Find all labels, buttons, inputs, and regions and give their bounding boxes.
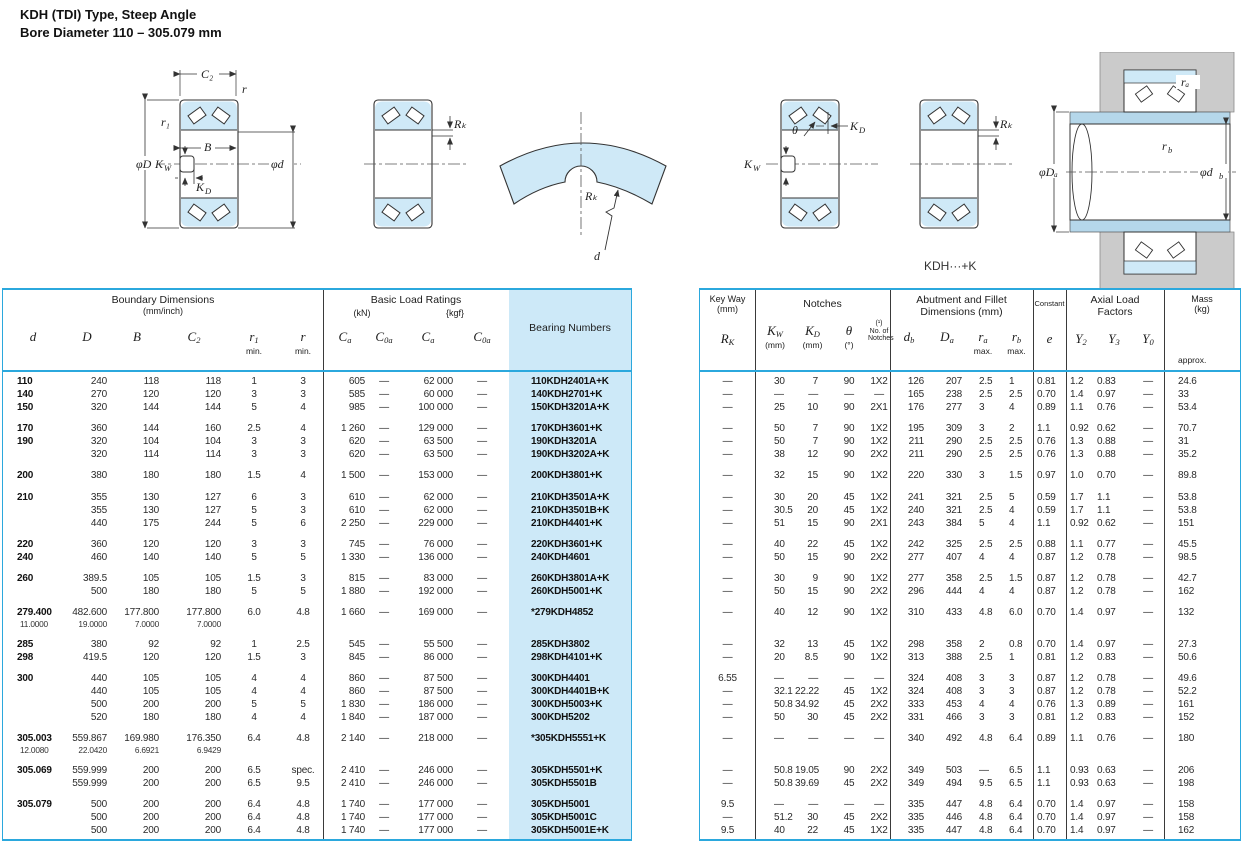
cell: 559.86722.0420 — [63, 732, 111, 756]
cell: 87 500 — [401, 672, 455, 685]
cell: *305KDH5551+K — [509, 732, 631, 756]
cell: 1X2 — [868, 572, 890, 585]
cell: — — [455, 375, 509, 388]
cell: 238 — [928, 388, 966, 401]
cell: 90 — [830, 435, 868, 448]
cell: — — [455, 551, 509, 564]
col-header-Y0: Y0 — [1132, 330, 1164, 348]
cell: — — [455, 585, 509, 598]
cell: — — [700, 711, 755, 724]
cell: — — [455, 504, 509, 517]
cell: 33 — [1164, 388, 1240, 401]
cell: 162 — [1164, 585, 1240, 598]
cell: 6.5 — [225, 777, 283, 790]
right-table-header: Key Way(mm) RK Notches KW(mm) KD(mm) θ(°… — [700, 290, 1240, 370]
cell: 1X2 — [868, 491, 890, 504]
cell: 559.999 — [63, 764, 111, 777]
cell: — — [367, 538, 401, 551]
cell: 22.22 — [795, 685, 830, 698]
cell: 4 — [225, 685, 283, 698]
cell: 260KDH5001+K — [509, 585, 631, 598]
row-group: 21035513012763610—62 000—210KDH3501A+K35… — [3, 491, 631, 530]
table-row: 35513012753610—62 000—210KDH3501B+K — [3, 504, 631, 517]
cell: 4.8 — [966, 824, 1000, 837]
cell: — — [700, 585, 755, 598]
cell: 210KDH3501B+K — [509, 504, 631, 517]
cell: — — [455, 824, 509, 837]
cell: 50.8 — [755, 777, 795, 790]
col-header-ra-max: ramax. — [966, 328, 1000, 356]
cell: 1 — [1000, 375, 1033, 388]
cell: 4 — [966, 585, 1000, 598]
cell: 349 — [890, 777, 928, 790]
cell — [3, 698, 63, 711]
cell: — — [455, 469, 509, 482]
cell: 136 000 — [401, 551, 455, 564]
cell: 5 — [283, 698, 323, 711]
cell: 2.5 — [283, 638, 323, 651]
cell: 45 — [830, 777, 868, 790]
column-divider — [755, 290, 756, 839]
catalog-page: KDH (TDI) Type, Steep Angle Bore Diamete… — [0, 0, 1241, 844]
cell: 1.1 — [1033, 517, 1066, 530]
cell: — — [455, 798, 509, 811]
cell: 52.2 — [1164, 685, 1240, 698]
cell: 2.5 — [1000, 388, 1033, 401]
cell: 140 — [111, 551, 163, 564]
cell: 0.97 — [1096, 811, 1132, 824]
col-header-theta: θ(°) — [830, 322, 868, 350]
cell: 0.78 — [1096, 585, 1132, 598]
cell: — — [367, 638, 401, 651]
cell: 3 — [283, 651, 323, 664]
cell: 229 000 — [401, 517, 455, 530]
cell: 9.5 — [700, 824, 755, 837]
cell: 335 — [890, 798, 928, 811]
cell: 305.079 — [3, 798, 63, 811]
row-group: —309901X22773582.51.50.871.20.78—42.7—50… — [700, 572, 1240, 598]
cell: 0.92 — [1066, 422, 1096, 435]
cell: 360 — [63, 422, 111, 435]
cell: 98.5 — [1164, 551, 1240, 564]
cell: 9.5 — [700, 798, 755, 811]
dim-label-kd: K — [195, 180, 205, 194]
cell: 333 — [890, 698, 928, 711]
cell: — — [1132, 435, 1164, 448]
cell: 1.5 — [1000, 572, 1033, 585]
cell: 45 — [830, 824, 868, 837]
cell: 90 — [830, 764, 868, 777]
cell: 158 — [1164, 811, 1240, 824]
page-title: KDH (TDI) Type, Steep Angle Bore Diamete… — [20, 6, 222, 42]
cell: 0.89 — [1033, 401, 1066, 414]
cell: 4 — [1000, 698, 1033, 711]
cell: — — [367, 572, 401, 585]
cell: 53.8 — [1164, 504, 1240, 517]
cell: 200 — [111, 824, 163, 837]
cell — [3, 504, 63, 517]
cell: 0.81 — [1033, 651, 1066, 664]
cell: 0.97 — [1096, 824, 1132, 837]
cell: 132 — [1164, 606, 1240, 630]
cell: 1 330 — [323, 551, 367, 564]
cell: 0.89 — [1096, 698, 1132, 711]
cell: 298 — [890, 638, 928, 651]
cell: 120 — [163, 538, 225, 551]
cell: 177.8007.0000 — [163, 606, 225, 630]
mass-approx-label: approx. — [1164, 354, 1241, 366]
cell: 20 — [795, 491, 830, 504]
cell: 89.8 — [1164, 469, 1240, 482]
cell: 127 — [163, 504, 225, 517]
cell: 170KDH3601+K — [509, 422, 631, 435]
cell: 0.83 — [1096, 711, 1132, 724]
col-header-d: d — [3, 328, 63, 346]
cell: 1X2 — [868, 538, 890, 551]
cell: 90 — [830, 572, 868, 585]
cell: — — [966, 764, 1000, 777]
cell: — — [367, 375, 401, 388]
cell: 335 — [890, 824, 928, 837]
col-header-Ca-kn: Ca — [323, 328, 367, 346]
table-row: —208.5901X23133882.510.811.20.83—50.6 — [700, 651, 1240, 664]
cell: 153 000 — [401, 469, 455, 482]
cell: 321 — [928, 504, 966, 517]
cell: 240KDH4601 — [509, 551, 631, 564]
column-divider — [1033, 290, 1034, 839]
cell: 5 — [225, 551, 283, 564]
cell: 0.76 — [1033, 448, 1066, 461]
cell: — — [700, 551, 755, 564]
cell: 2.5 — [966, 651, 1000, 664]
cell: 290 — [928, 435, 966, 448]
cell: 190KDH3201A — [509, 435, 631, 448]
cell: 1.1 — [1066, 538, 1096, 551]
cell: 2.5 — [966, 572, 1000, 585]
cell: 0.83 — [1096, 375, 1132, 388]
cell: 2.5 — [966, 448, 1000, 461]
table-row: —5015902X2296444440.871.20.78—162 — [700, 585, 1240, 598]
cell: 4.8 — [283, 606, 323, 630]
cell: 62 000 — [401, 491, 455, 504]
cell: 296 — [890, 585, 928, 598]
cell: 210KDH4401+K — [509, 517, 631, 530]
cell: 1 740 — [323, 798, 367, 811]
cell: 30 — [755, 572, 795, 585]
group-header-boundary: Boundary Dimensions (mm/inch) — [3, 294, 323, 316]
cell: 105 — [163, 672, 225, 685]
cell: 500 — [63, 798, 111, 811]
cell: 200KDH3801+K — [509, 469, 631, 482]
cell: 446 — [928, 811, 966, 824]
dim-label-d: d — [594, 249, 601, 263]
cell: 2X2 — [868, 698, 890, 711]
dim-label-r1: r₁ — [161, 115, 170, 129]
cell: 1.3 — [1066, 448, 1096, 461]
cell: 220KDH3601+K — [509, 538, 631, 551]
cell: 4 — [283, 685, 323, 698]
dim-label-rk: Rₖ — [584, 189, 598, 203]
cell: 0.8 — [1000, 638, 1033, 651]
cell: 305KDH5501B — [509, 777, 631, 790]
cell: 0.97 — [1096, 638, 1132, 651]
title-line2: Bore Diameter 110 – 305.079 mm — [20, 24, 222, 42]
cell: 129 000 — [401, 422, 455, 435]
cell: — — [868, 732, 890, 756]
cell: 162 — [1164, 824, 1240, 837]
cell: 2.5 — [1000, 538, 1033, 551]
cell: 53.4 — [1164, 401, 1240, 414]
cell: 9.5 — [283, 777, 323, 790]
cell: 482.60019.0000 — [63, 606, 111, 630]
cell: 3 — [966, 401, 1000, 414]
table-row: 298419.51201201.53845—86 000—298KDH4101+… — [3, 651, 631, 664]
cell: 3 — [283, 491, 323, 504]
cell: 3 — [966, 469, 1000, 482]
column-divider — [1066, 290, 1067, 839]
dim-label-kw: K — [154, 157, 164, 171]
row-group: 260389.51051051.53815—83 000—260KDH3801A… — [3, 572, 631, 598]
cell: — — [367, 435, 401, 448]
table-row: 559.9992002006.59.52 410—246 000—305KDH5… — [3, 777, 631, 790]
cell: 15 — [795, 469, 830, 482]
cell: 503 — [928, 764, 966, 777]
right-table-body: —307901X21262072.510.811.20.83—24.6—————… — [700, 372, 1240, 839]
cell: 187 000 — [401, 711, 455, 724]
cell: 5 — [1000, 491, 1033, 504]
cell: 300KDH4401B+K — [509, 685, 631, 698]
cell: 19.05 — [795, 764, 830, 777]
row-group: 279.40011.0000482.60019.0000177.8007.000… — [3, 606, 631, 630]
cell: 1 660 — [323, 606, 367, 630]
keyway-profile — [180, 156, 194, 172]
cell: 2.5 — [966, 538, 1000, 551]
cell: 105 — [163, 685, 225, 698]
cell: 0.88 — [1033, 538, 1066, 551]
cell: 0.88 — [1096, 448, 1132, 461]
cell: 60 000 — [401, 388, 455, 401]
cell: — — [1132, 388, 1164, 401]
cell: 6.4 — [1000, 811, 1033, 824]
cell: — — [755, 798, 795, 811]
cell: 300KDH4401 — [509, 672, 631, 685]
cell: 860 — [323, 685, 367, 698]
spacer-top — [1070, 112, 1230, 124]
cell: — — [455, 606, 509, 630]
figure-bearing-rk: Rₖ — [356, 60, 478, 262]
cell: — — [868, 388, 890, 401]
cell: 40 — [755, 824, 795, 837]
cell: 3 — [225, 388, 283, 401]
cell: 7 — [795, 435, 830, 448]
cell: 180 — [111, 711, 163, 724]
cell: 2X2 — [868, 585, 890, 598]
cell: 177 000 — [401, 824, 455, 837]
cell: 2X1 — [868, 517, 890, 530]
cell: 460 — [63, 551, 111, 564]
table-row: 260389.51051051.53815—83 000—260KDH3801A… — [3, 572, 631, 585]
cell: — — [367, 469, 401, 482]
cell: 2X2 — [868, 448, 890, 461]
cell: 5 — [283, 585, 323, 598]
cell: — — [1132, 651, 1164, 664]
spacer-bottom — [1070, 220, 1230, 232]
cell: 309 — [928, 422, 966, 435]
cell: — — [795, 732, 830, 756]
row-group: 305.0795002002006.44.81 740—177 000—305K… — [3, 798, 631, 837]
row-group: —————3404924.86.40.891.10.76—180 — [700, 732, 1240, 756]
cell: 200 — [3, 469, 63, 482]
header-rule — [3, 370, 631, 372]
cell: — — [455, 811, 509, 824]
cell: 62 000 — [401, 375, 455, 388]
cell — [3, 685, 63, 698]
cell: 105 — [111, 672, 163, 685]
cell: 1.4 — [1066, 388, 1096, 401]
table-row: 440175244562 250—229 000—210KDH4401+K — [3, 517, 631, 530]
cell: 1.4 — [1066, 606, 1096, 630]
cell: 1 500 — [323, 469, 367, 482]
cell: 200 — [111, 764, 163, 777]
cell: — — [455, 638, 509, 651]
table-row: —507901X22112902.52.50.761.30.88—31 — [700, 435, 1240, 448]
cell: 0.81 — [1033, 375, 1066, 388]
cell: 6.5 — [1000, 777, 1033, 790]
col-header-B: B — [111, 328, 163, 346]
cell: 240 — [890, 504, 928, 517]
cell: — — [1132, 711, 1164, 724]
cell: — — [1132, 517, 1164, 530]
row-group: —507901X2195309321.10.920.62—70.7—507901… — [700, 422, 1240, 461]
cell: 190 — [3, 435, 63, 448]
cell: 0.87 — [1033, 685, 1066, 698]
table-row: 15032014414454985—100 000—150KDH3201A+K — [3, 401, 631, 414]
cell: 0.87 — [1033, 551, 1066, 564]
cell: 218 000 — [401, 732, 455, 756]
cell: 2.5 — [966, 375, 1000, 388]
cell: 384 — [928, 517, 966, 530]
cell: 30 — [755, 375, 795, 388]
cell: 300 — [3, 672, 63, 685]
cell: 3 — [225, 448, 283, 461]
cell: 90 — [830, 469, 868, 482]
cell: 0.59 — [1033, 504, 1066, 517]
col-header-C2: C2 — [163, 328, 225, 346]
table-row: 1703601441602.541 260—129 000—170KDH3601… — [3, 422, 631, 435]
cell: 45.5 — [1164, 538, 1240, 551]
cell: 277 — [928, 401, 966, 414]
cell: 2.5 — [1000, 448, 1033, 461]
cell: 1.1 — [1066, 401, 1096, 414]
header-rule — [700, 370, 1240, 372]
cell: 35.2 — [1164, 448, 1240, 461]
cell: 4 — [1000, 517, 1033, 530]
cell: 211 — [890, 435, 928, 448]
figure-notch-segment: Rₖ d — [488, 108, 678, 273]
cell: 3 — [966, 422, 1000, 435]
group-header-bearing-numbers: Bearing Numbers — [509, 322, 631, 334]
cell: 6.4 — [1000, 798, 1033, 811]
table-row: 6.55————324408330.871.20.78—49.6 — [700, 672, 1240, 685]
cell: 1.2 — [1066, 375, 1096, 388]
cell: 6.4 — [1000, 732, 1033, 756]
cell: — — [455, 448, 509, 461]
cell: 180 — [111, 585, 163, 598]
dim-label-phidb: φd — [1200, 165, 1214, 179]
cell: 0.62 — [1096, 422, 1132, 435]
cell: 305KDH5001E+K — [509, 824, 631, 837]
cell: 440 — [63, 685, 111, 698]
figure-bearing-k-suffix: Rₖ KDH···+K — [902, 60, 1030, 278]
dim-label-c2: C₂ — [201, 67, 213, 81]
cell: 30.5 — [755, 504, 795, 517]
cell: 10 — [795, 401, 830, 414]
cell: 114 — [111, 448, 163, 461]
cell: — — [455, 401, 509, 414]
cell: 4 — [225, 711, 283, 724]
cell: 1X2 — [868, 422, 890, 435]
cell: 9 — [795, 572, 830, 585]
cell: 277 — [890, 551, 928, 564]
dim-label-phid: φd — [271, 157, 285, 171]
row-group: —3215901X222033031.50.971.00.70—89.8 — [700, 469, 1240, 482]
cell: 3 — [283, 504, 323, 517]
cell: 90 — [830, 517, 868, 530]
cell: 0.97 — [1033, 469, 1066, 482]
cell: 0.70 — [1033, 606, 1066, 630]
table-row: 5002002006.44.81 740—177 000—305KDH5001C — [3, 811, 631, 824]
cell: — — [1132, 811, 1164, 824]
keyway-profile — [781, 156, 795, 172]
cell: 388 — [928, 651, 966, 664]
cell: 494 — [928, 777, 966, 790]
cell: — — [700, 638, 755, 651]
cell: — — [1132, 824, 1164, 837]
cell: 32 — [755, 469, 795, 482]
cell: — — [455, 538, 509, 551]
cell: 39.69 — [795, 777, 830, 790]
cell: 1.2 — [1066, 572, 1096, 585]
cell: — — [1132, 777, 1164, 790]
cell: 90 — [830, 551, 868, 564]
row-group: 305.069559.9992002006.5spec.2 410—246 00… — [3, 764, 631, 790]
group-header-load-ratings: Basic Load Ratings — [323, 294, 509, 306]
cell: 2X2 — [868, 551, 890, 564]
leader-arrow — [605, 190, 618, 250]
table-row: —5030452X2331466330.811.20.83—152 — [700, 711, 1240, 724]
cell: 545 — [323, 638, 367, 651]
cell: 30 — [755, 491, 795, 504]
cell: 0.76 — [1033, 698, 1066, 711]
cell: 90 — [830, 448, 868, 461]
cell: 1.4 — [1066, 638, 1096, 651]
cell: — — [367, 711, 401, 724]
col-header-Y2: Y2 — [1066, 330, 1096, 348]
cell — [3, 517, 63, 530]
cell: 51.2 — [755, 811, 795, 824]
cell: 419.5 — [63, 651, 111, 664]
cell: — — [367, 685, 401, 698]
cell: 320 — [63, 435, 111, 448]
cell: 150KDH3201A+K — [509, 401, 631, 414]
cell: — — [1132, 375, 1164, 388]
cell: — — [830, 388, 868, 401]
cell: — — [830, 672, 868, 685]
cell: 200 — [163, 777, 225, 790]
cell: 3 — [283, 538, 323, 551]
cell: 30 — [795, 711, 830, 724]
cell: 745 — [323, 538, 367, 551]
